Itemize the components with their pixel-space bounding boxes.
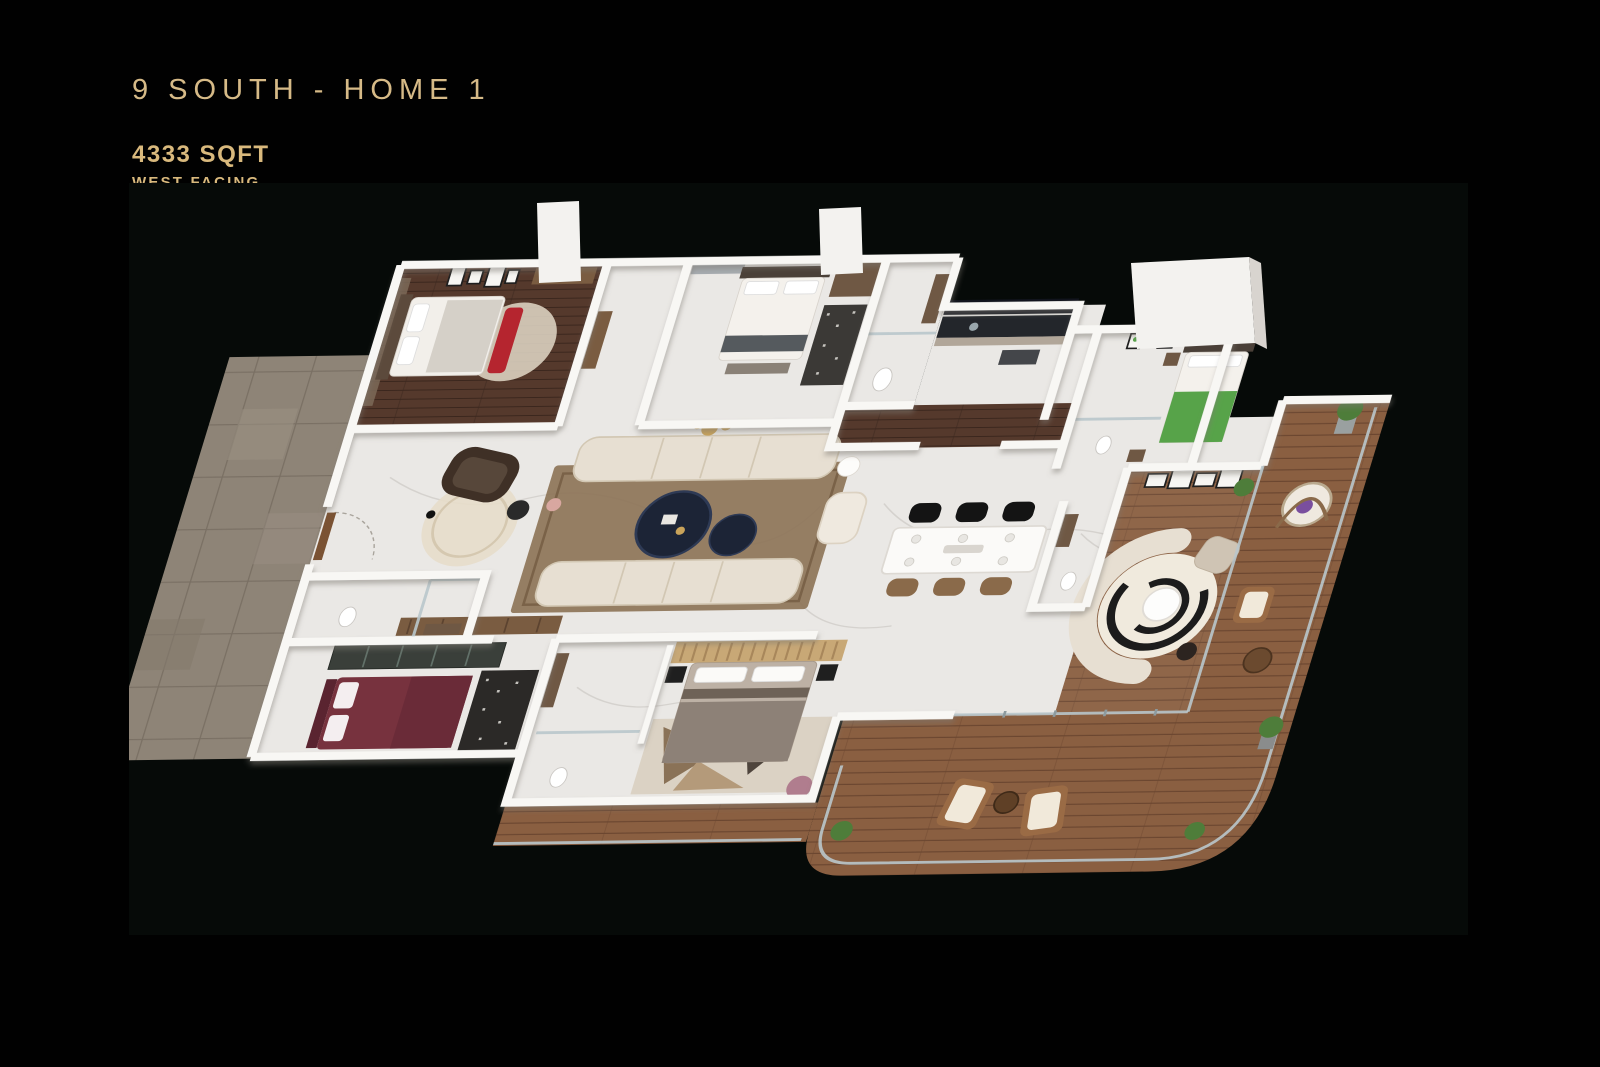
floorplan-render-photo [129,183,1468,935]
wall-art [1167,470,1194,488]
floor-plan-svg [129,183,1468,935]
pillow [743,281,779,295]
tall-wall-block [819,207,863,275]
shower-glass [536,731,640,732]
bath-partition-glass [1071,418,1161,419]
wall-art [1145,474,1169,487]
kitchen-counter [936,315,1074,338]
bed-throw [681,687,810,699]
sofa-north [570,434,845,482]
bed-throw [720,335,808,353]
shower-glass [864,333,936,334]
vanity [423,624,462,635]
table-deco [661,514,678,524]
page-title: 9 SOUTH - HOME 1 [132,74,491,107]
bed-headboard [739,266,833,279]
curtain [690,264,745,275]
sofa-south [532,558,807,606]
pillow [693,667,748,682]
bed-duvet [662,701,807,763]
presentation-slide: 9 SOUTH - HOME 1 4333 SQFT WEST FACING [0,0,1600,1067]
pillow [1187,355,1243,367]
kitchen-island [998,350,1040,365]
pillow [783,281,819,295]
pillow [751,666,806,681]
table-runner [942,545,984,554]
area-label: 4333 SQFT [132,141,270,169]
tall-wall-block [1131,257,1255,349]
glass-wardrobe [328,643,506,670]
wall-art [1193,473,1217,486]
bed-end-bench [724,363,790,375]
slat-headboard [670,640,848,664]
tall-wall-block [537,201,581,283]
